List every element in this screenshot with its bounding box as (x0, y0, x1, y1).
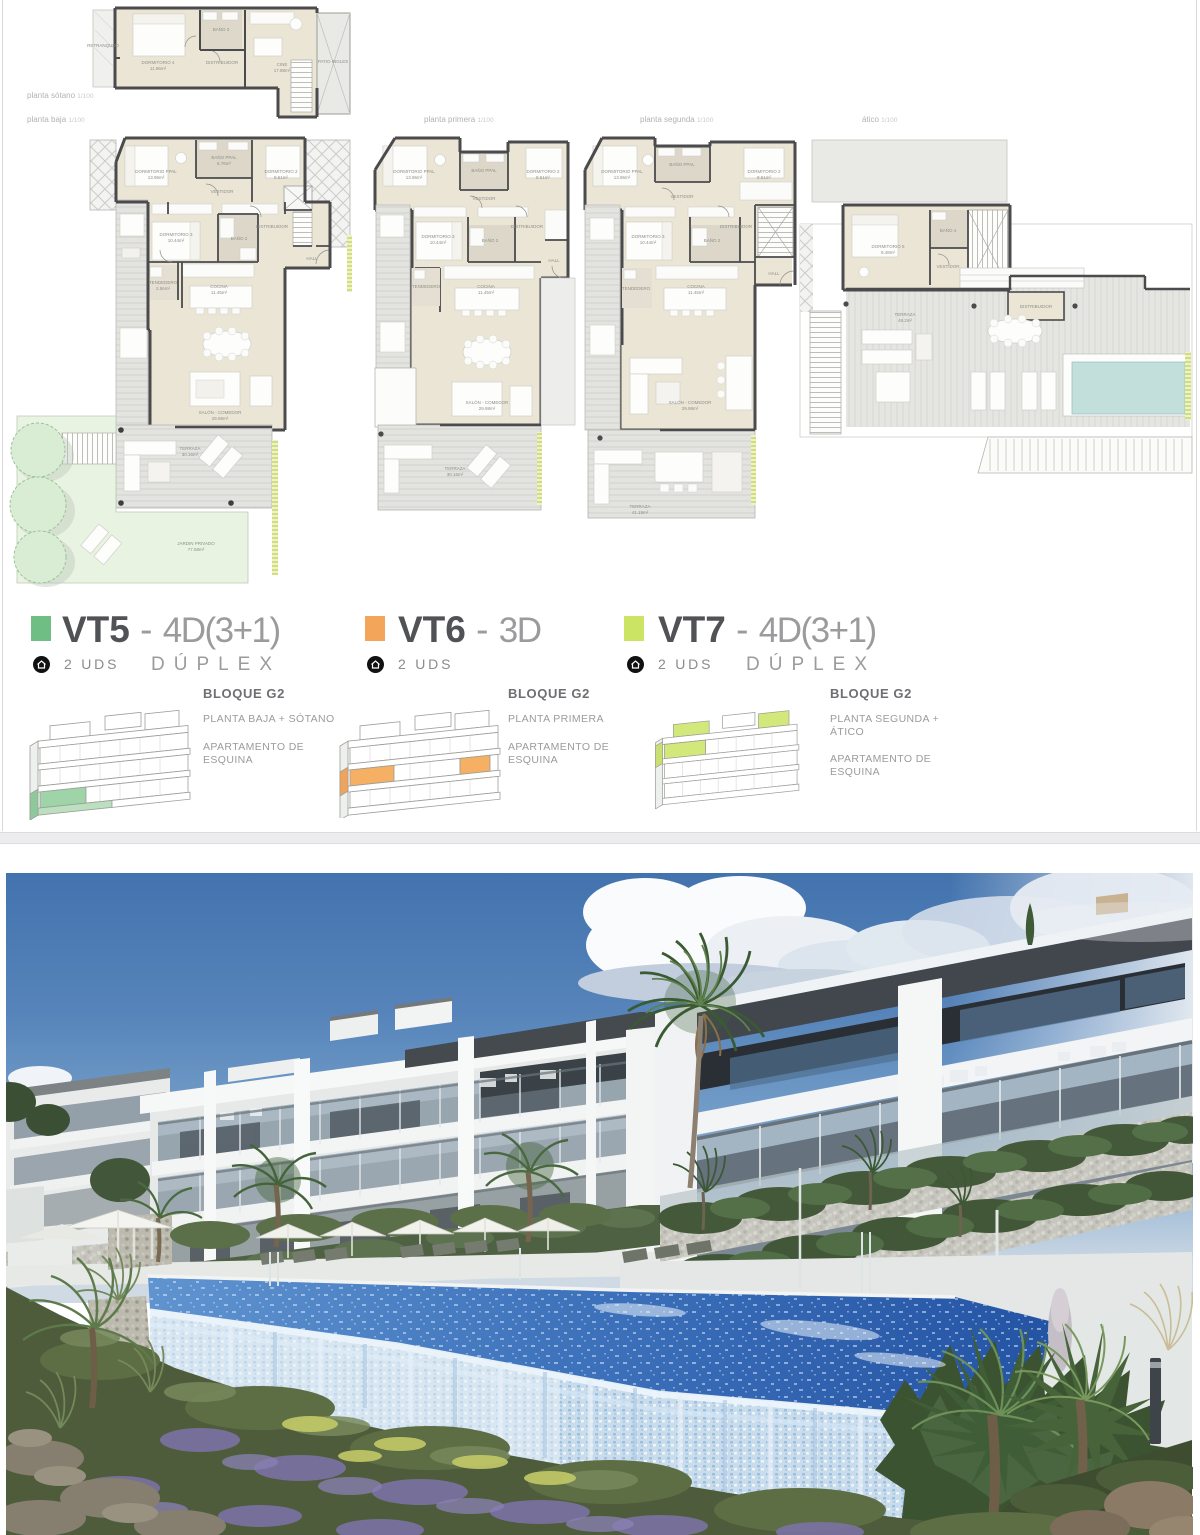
svg-text:TERRAZA: TERRAZA (629, 504, 650, 509)
svg-text:DORMITORIO PPAL: DORMITORIO PPAL (135, 169, 177, 174)
svg-text:29.98m²: 29.98m² (479, 406, 496, 411)
svg-text:HALL: HALL (306, 256, 318, 261)
svg-text:VESTIDOR: VESTIDOR (210, 189, 234, 194)
svg-text:JARDIN PRIVADO: JARDIN PRIVADO (177, 541, 215, 546)
svg-text:TERRAZA: TERRAZA (444, 466, 465, 471)
svg-text:VESTIDOR: VESTIDOR (936, 264, 960, 269)
svg-text:TENDEDERO: TENDEDERO (622, 286, 651, 291)
svg-text:COCINA: COCINA (210, 284, 228, 289)
svg-text:9.51m²: 9.51m² (757, 175, 772, 180)
svg-text:SALÓN - COMEDOR: SALÓN - COMEDOR (669, 399, 713, 405)
svg-text:DORMITORIO 5: DORMITORIO 5 (872, 244, 905, 249)
svg-text:DORMITORIO 2: DORMITORIO 2 (265, 169, 298, 174)
svg-text:11.45m²: 11.45m² (688, 290, 705, 295)
svg-text:DORMITORIO 3: DORMITORIO 3 (632, 234, 665, 239)
svg-text:BAÑO 2: BAÑO 2 (482, 237, 499, 243)
svg-text:VESTIDOR: VESTIDOR (472, 196, 496, 201)
svg-text:29.98m²: 29.98m² (212, 416, 229, 421)
svg-text:TENDEDERO: TENDEDERO (412, 284, 441, 289)
svg-text:TERRAZA: TERRAZA (179, 446, 200, 451)
svg-text:PATIO INGLES: PATIO INGLES (318, 59, 349, 64)
svg-text:BAÑO PPAL: BAÑO PPAL (471, 167, 497, 173)
svg-text:2.56m²: 2.56m² (156, 286, 171, 291)
svg-text:13.96m²: 13.96m² (614, 175, 631, 180)
svg-text:BAÑO 3: BAÑO 3 (213, 26, 230, 32)
svg-text:DORMITORIO 4: DORMITORIO 4 (142, 60, 175, 65)
svg-text:29.98m²: 29.98m² (682, 406, 699, 411)
svg-text:DORMITORIO 2: DORMITORIO 2 (527, 169, 560, 174)
svg-text:planta sótano 1/100: planta sótano 1/100 (27, 91, 94, 100)
svg-text:10.44m²: 10.44m² (430, 240, 447, 245)
svg-text:DORMITORIO PPAL: DORMITORIO PPAL (601, 169, 643, 174)
svg-text:10.44m²: 10.44m² (640, 240, 657, 245)
svg-text:HALL: HALL (768, 271, 780, 276)
svg-text:DISTRIBUIDOR: DISTRIBUIDOR (256, 224, 289, 229)
svg-text:11.96m²: 11.96m² (150, 66, 167, 71)
svg-text:9.48m²: 9.48m² (881, 250, 896, 255)
svg-text:VESTIDOR: VESTIDOR (670, 194, 694, 199)
svg-text:9.51m²: 9.51m² (536, 175, 551, 180)
svg-text:TENDEDERO: TENDEDERO (149, 280, 178, 285)
svg-text:BAÑO PPAL: BAÑO PPAL (669, 161, 695, 167)
svg-text:HALL: HALL (548, 258, 560, 263)
svg-text:RETRANQUEO: RETRANQUEO (87, 43, 119, 48)
svg-text:DORMITORIO PPAL: DORMITORIO PPAL (393, 169, 435, 174)
svg-text:DISTRIBUIDOR: DISTRIBUIDOR (206, 60, 239, 65)
svg-text:49.2m²: 49.2m² (898, 318, 913, 323)
svg-text:11.45m²: 11.45m² (478, 290, 495, 295)
svg-text:13.96m²: 13.96m² (406, 175, 423, 180)
svg-text:DISTRIBUIDOR: DISTRIBUIDOR (720, 224, 753, 229)
svg-text:11.45m²: 11.45m² (211, 290, 228, 295)
svg-text:BAÑO PPAL: BAÑO PPAL (211, 154, 237, 160)
svg-text:30.16m²: 30.16m² (447, 472, 464, 477)
svg-text:BAÑO 4: BAÑO 4 (940, 227, 957, 233)
svg-text:77.58m²: 77.58m² (188, 547, 205, 552)
svg-text:10.44m²: 10.44m² (168, 238, 185, 243)
svg-text:CINE: CINE (277, 62, 288, 67)
svg-text:SALÓN - COMEDOR: SALÓN - COMEDOR (466, 399, 510, 405)
svg-text:DORMITORIO 2: DORMITORIO 2 (748, 169, 781, 174)
svg-text:ático 1/100: ático 1/100 (862, 115, 898, 124)
svg-text:13.96m²: 13.96m² (148, 175, 165, 180)
svg-text:DISTRIBUIDOR: DISTRIBUIDOR (511, 224, 544, 229)
svg-text:DORMITORIO 3: DORMITORIO 3 (160, 232, 193, 237)
svg-text:BAÑO 2: BAÑO 2 (231, 235, 248, 241)
svg-text:30.16m²: 30.16m² (182, 452, 199, 457)
svg-text:9.51m²: 9.51m² (274, 175, 289, 180)
svg-text:41.19m²: 41.19m² (632, 510, 649, 515)
svg-text:6.76m²: 6.76m² (217, 161, 232, 166)
svg-text:DISTRIBUIDOR: DISTRIBUIDOR (1020, 304, 1053, 309)
svg-text:DORMITORIO 3: DORMITORIO 3 (422, 234, 455, 239)
svg-text:planta primera 1/100: planta primera 1/100 (424, 115, 494, 124)
svg-text:17.88m²: 17.88m² (274, 68, 291, 73)
svg-text:BAÑO 2: BAÑO 2 (704, 237, 721, 243)
svg-text:planta baja 1/100: planta baja 1/100 (27, 115, 85, 124)
svg-text:COCINA: COCINA (687, 284, 705, 289)
svg-text:COCINA: COCINA (477, 284, 495, 289)
svg-text:planta segunda 1/100: planta segunda 1/100 (640, 115, 714, 124)
svg-text:TERRAZA: TERRAZA (894, 312, 915, 317)
svg-text:SALÓN - COMEDOR: SALÓN - COMEDOR (199, 409, 243, 415)
